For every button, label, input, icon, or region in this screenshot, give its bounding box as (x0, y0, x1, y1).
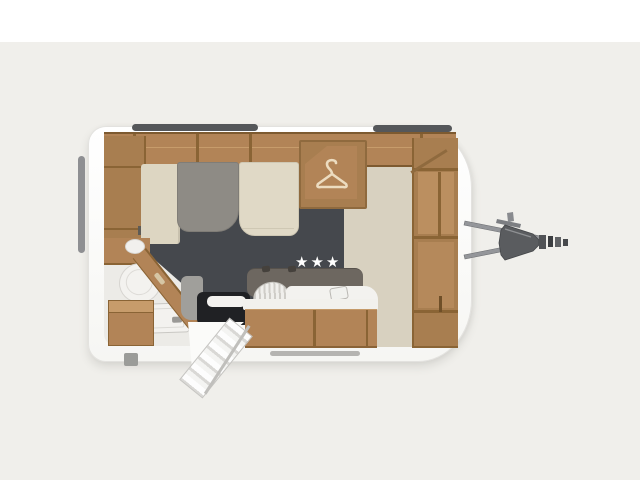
door-handle (154, 272, 166, 285)
window-bar-bottom (270, 351, 360, 356)
hitch-handle-segment (555, 237, 561, 247)
cabinet-shelf-interior (418, 242, 454, 308)
cabinet-handle (439, 296, 442, 312)
cabinet-top-face (109, 301, 153, 313)
cabinet-divider (249, 134, 252, 165)
hitch-handle-segment (539, 235, 546, 249)
bathroom-cabinet (108, 300, 154, 346)
bed-mattress-gray (177, 162, 239, 232)
hitch-handle-segment (548, 236, 553, 247)
shelf-line (414, 310, 458, 313)
kitchen-counter-dark (197, 292, 250, 325)
cabinet-divider (196, 134, 199, 165)
cabinet-front-lip (104, 147, 456, 148)
bench-divider (313, 310, 316, 346)
kitchen-sink (207, 296, 246, 307)
bed-mattress-beige (239, 162, 299, 236)
mattress-fold-line (242, 228, 294, 229)
cabinet-divider (438, 172, 441, 236)
tow-hitch (455, 205, 575, 265)
cushion-handle (262, 265, 271, 272)
wardrobe (299, 140, 367, 209)
shelf-line (104, 166, 144, 168)
window-bar-top-left (132, 124, 258, 131)
floorplan-scene: ★★★ (0, 0, 640, 480)
hanger-icon (313, 154, 351, 196)
rating-stars: ★★★ (295, 255, 341, 270)
bench-divider (366, 310, 368, 346)
cabinet-shelf-interior (418, 172, 454, 234)
window-bar-left (78, 156, 85, 253)
bench-seat-front (245, 309, 377, 348)
window-bar-top-right (373, 125, 452, 132)
right-wall-cabinets (412, 138, 458, 348)
bed-side-panel (141, 164, 180, 244)
hitch-coupler (499, 225, 539, 260)
corner-steady-jack (124, 353, 138, 366)
hitch-handle-segment (563, 239, 568, 246)
hitch-jockey-clamp (507, 212, 514, 222)
shelf-line (414, 236, 458, 239)
background-top-band (0, 0, 640, 42)
